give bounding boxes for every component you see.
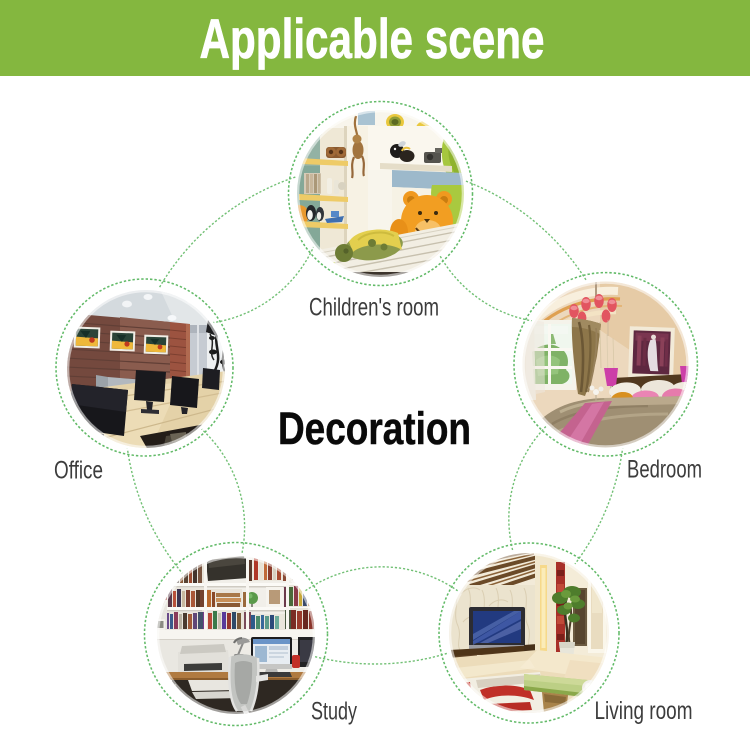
svg-text:Study: Study: [311, 698, 357, 726]
svg-text:Office: Office: [54, 457, 103, 485]
svg-text:Children's room: Children's room: [309, 294, 439, 322]
svg-text:Applicable scene: Applicable scene: [200, 7, 545, 70]
svg-text:Bedroom: Bedroom: [627, 456, 702, 484]
svg-text:Decoration: Decoration: [278, 403, 471, 454]
svg-text:Living room: Living room: [595, 697, 693, 725]
